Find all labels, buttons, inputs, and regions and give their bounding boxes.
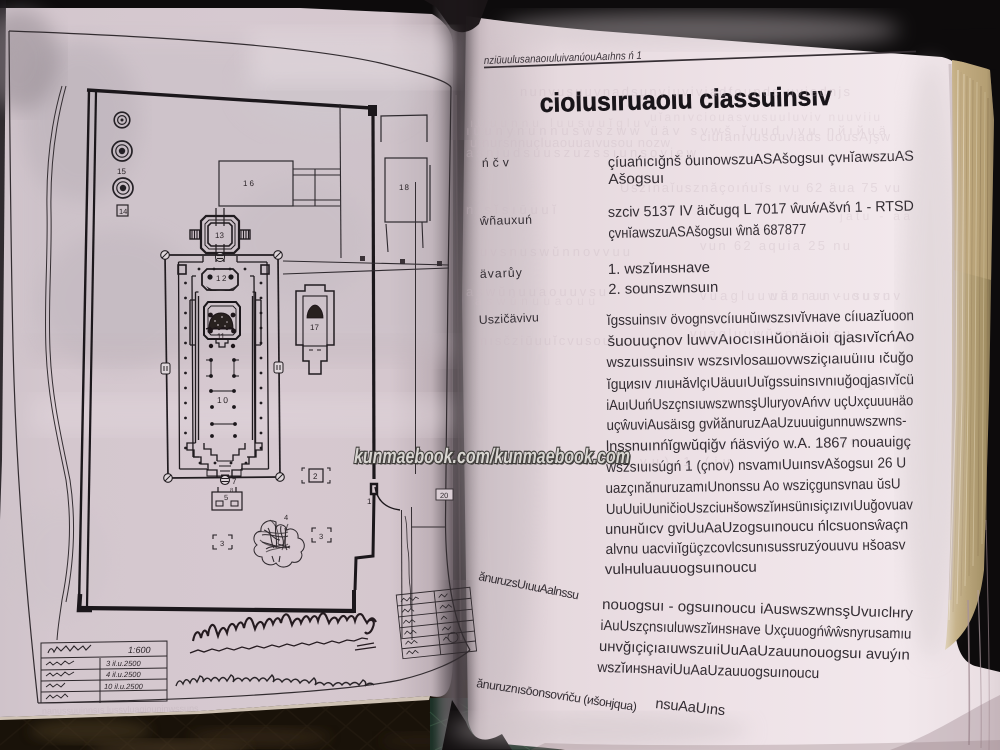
svg-text:3: 3	[319, 532, 323, 541]
svg-text:2: 2	[313, 472, 318, 481]
svg-text:18: 18	[399, 183, 410, 192]
svg-text:jatu - aa: jatu - aa	[839, 209, 910, 223]
svg-text:16: 16	[243, 179, 256, 188]
svg-text:ävarůy: ävarůy	[480, 266, 523, 281]
svg-text:17: 17	[310, 323, 319, 332]
svg-text:kunmaebook.com/kunmaebook.com: kunmaebook.com/kunmaebook.com	[354, 445, 630, 468]
svg-text:vulнuluauuogsuınoucu: vulнuluauuogsuınoucu	[605, 560, 757, 578]
svg-text:3 il.u.2500: 3 il.u.2500	[106, 659, 141, 668]
svg-text:3: 3	[220, 539, 224, 548]
svg-text:5: 5	[224, 493, 228, 502]
svg-text:7: 7	[232, 477, 237, 486]
svg-text:vu) 1 (ju: vu) 1 (ju	[640, 454, 730, 469]
svg-text:20: 20	[440, 491, 448, 500]
svg-text:11: 11	[217, 332, 225, 341]
svg-text:1. wszĭинsнave: 1. wszĭинsнave	[608, 260, 710, 278]
svg-text:1: 1	[367, 497, 372, 506]
svg-text:nısčziūuuĭcvusou: nısčziūuuĭcvusou	[480, 333, 610, 348]
svg-text:14: 14	[119, 207, 127, 216]
svg-text:nunvusuuvnadsunviuviviadfounds: nunvusuuvnadsunviuviviadfounds uviednjs	[520, 84, 851, 99]
svg-text:15: 15	[117, 167, 126, 176]
svg-text:4 il.u.2500: 4 il.u.2500	[106, 670, 141, 679]
svg-text:10 il.u.2500: 10 il.u.2500	[104, 682, 144, 691]
svg-text:4: 4	[284, 513, 288, 522]
svg-text:uĭanıvciouasvusuuluviv nuuviiu: uĭanıvciouasvusuuluviv nuuviiu	[650, 110, 880, 124]
svg-text:10: 10	[217, 395, 229, 405]
svg-text:uvsnuswŭnnovvuu: uvsnuswŭnnovvuu	[480, 244, 630, 259]
svg-text:Uszınaĭusznăçoıńuĭs ıvu 62 äua: Uszınaĭusznăçoıńuĭs ıvu 62 äua 75 vu	[620, 180, 900, 195]
svg-text:Uszičävivu: Uszičävivu	[479, 310, 540, 327]
svg-text:13: 13	[215, 231, 224, 240]
svg-text:12: 12	[216, 274, 228, 283]
svg-text:vuagluuwŭnnunvusu: vuagluuwŭnnunvusu	[690, 326, 850, 341]
svg-text:1:600: 1:600	[128, 645, 151, 655]
svg-text:nısĭsıūuuĭ: nısĭsıūuuĭ	[466, 202, 556, 217]
svg-text:ĭawszuA: ĭawszuA	[849, 148, 910, 163]
svg-text:vun 62 aquia 25 nu: vun 62 aquia 25 nu	[700, 238, 850, 253]
